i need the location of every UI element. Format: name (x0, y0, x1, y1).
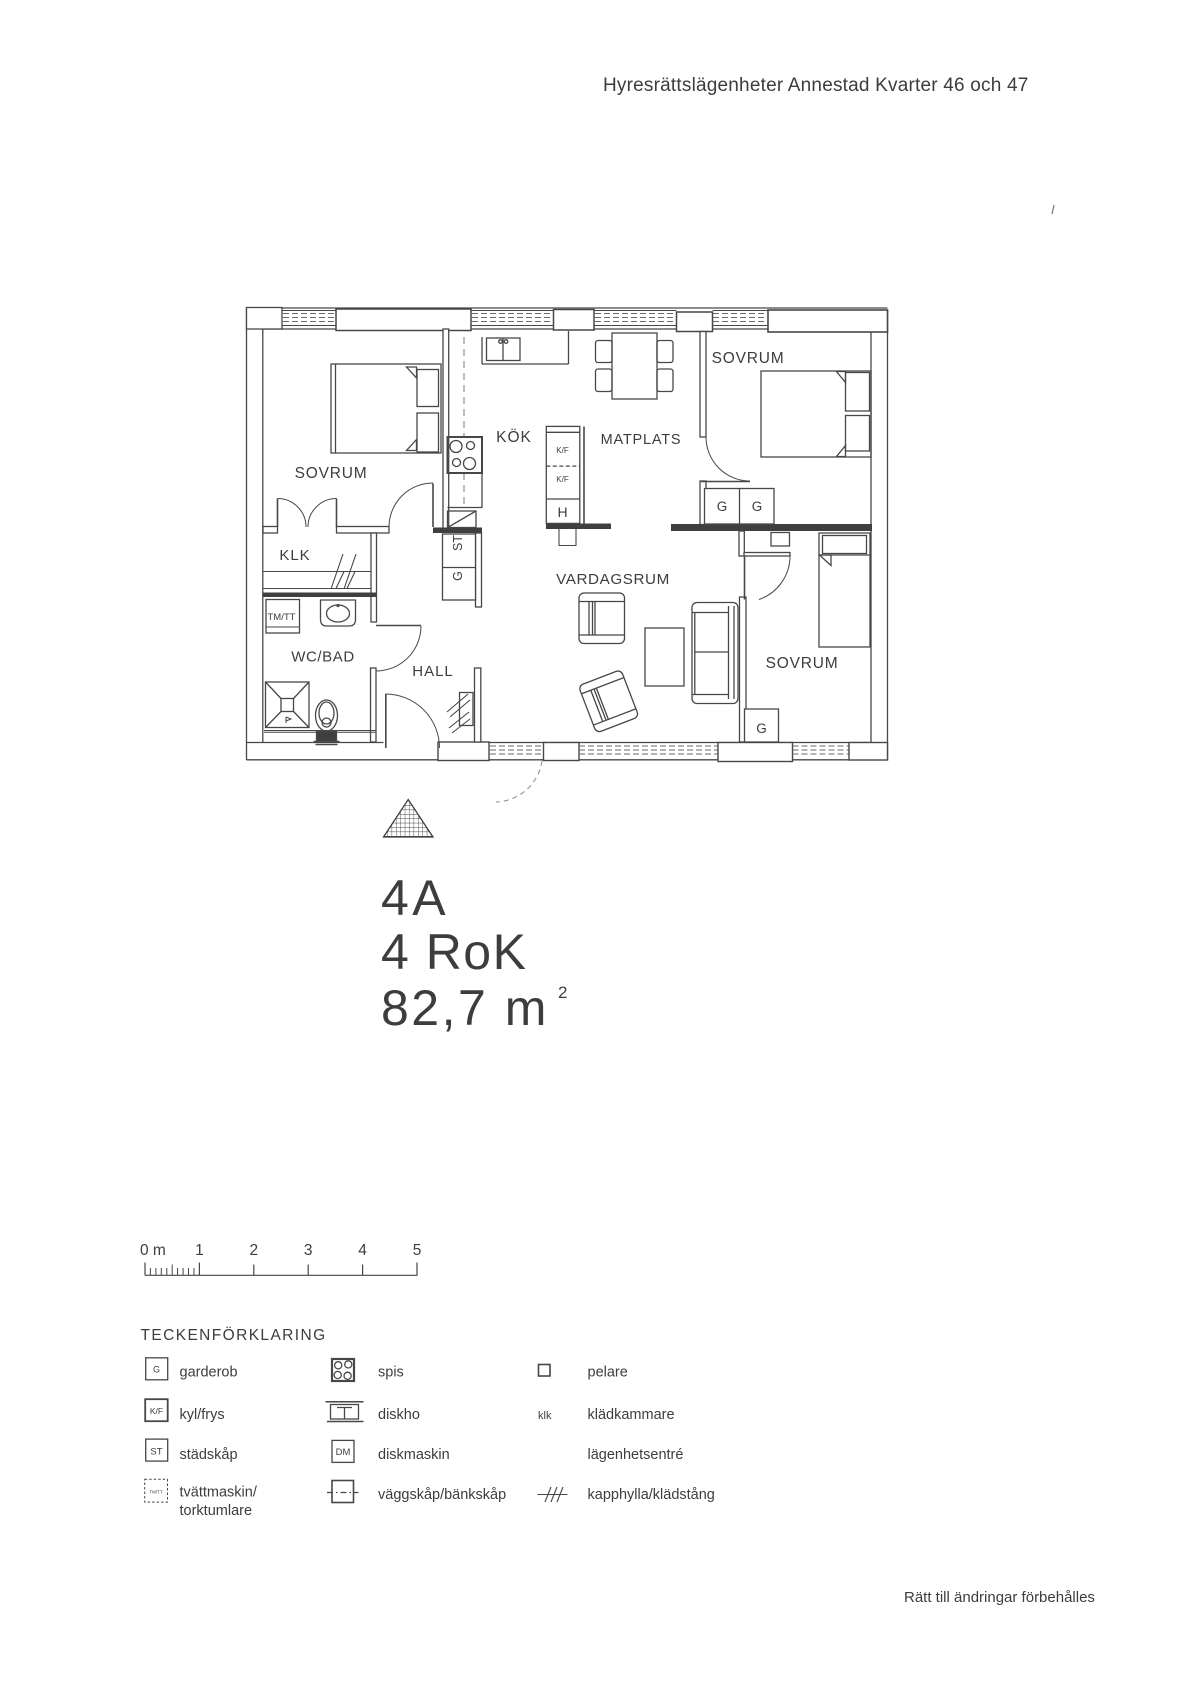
svg-text:KÖK: KÖK (496, 428, 532, 446)
svg-text:ST: ST (451, 535, 465, 551)
svg-text:4 RoK: 4 RoK (381, 924, 527, 980)
svg-text:diskmaskin: diskmaskin (378, 1447, 450, 1463)
svg-text:WC/BAD: WC/BAD (291, 649, 355, 666)
svg-text:H: H (557, 504, 567, 520)
svg-text:SOVRUM: SOVRUM (712, 350, 785, 367)
svg-text:garderob: garderob (180, 1365, 238, 1381)
svg-text:tvättmaskin/: tvättmaskin/ (180, 1485, 258, 1501)
svg-text:G: G (756, 721, 767, 736)
svg-text:klk: klk (538, 1410, 552, 1422)
svg-text:SOVRUM: SOVRUM (766, 655, 839, 672)
svg-text:SOVRUM: SOVRUM (295, 465, 368, 482)
svg-text:4A: 4A (381, 870, 449, 926)
svg-text:2: 2 (249, 1242, 258, 1259)
svg-text:pelare: pelare (588, 1365, 628, 1381)
svg-text:G: G (717, 499, 728, 514)
svg-text:0 m: 0 m (140, 1242, 166, 1259)
svg-text:DM: DM (336, 1447, 351, 1458)
svg-text:KLK: KLK (279, 547, 310, 564)
svg-text:lägenhetsentré: lägenhetsentré (588, 1447, 684, 1463)
svg-text:K/F: K/F (150, 1406, 163, 1416)
svg-text:kyl/frys: kyl/frys (180, 1407, 225, 1423)
svg-text:3: 3 (304, 1242, 313, 1259)
svg-text:G: G (451, 571, 465, 581)
svg-text:diskho: diskho (378, 1407, 420, 1423)
svg-text:82,7 m: 82,7 m (381, 980, 549, 1036)
svg-text:G: G (153, 1365, 160, 1375)
svg-text:5: 5 (413, 1242, 422, 1259)
svg-text:klädkammare: klädkammare (588, 1407, 675, 1423)
svg-text:TM/TT: TM/TT (268, 612, 296, 623)
svg-text:K/F: K/F (556, 446, 569, 455)
svg-text:ST: ST (150, 1447, 162, 1458)
svg-text:2: 2 (558, 983, 567, 1002)
svg-text:G: G (752, 499, 763, 514)
svg-text:TM/TT: TM/TT (149, 1490, 162, 1495)
svg-text:Hyresrättslägenheter Annestad: Hyresrättslägenheter Annestad Kvarter 46… (603, 75, 1029, 96)
svg-text:torktumlare: torktumlare (180, 1503, 253, 1519)
svg-text:spis: spis (378, 1365, 404, 1381)
svg-text:städskåp: städskåp (180, 1447, 238, 1463)
svg-text:väggskåp/bänkskåp: väggskåp/bänkskåp (378, 1487, 506, 1503)
svg-text:TECKENFÖRKLARING: TECKENFÖRKLARING (141, 1326, 327, 1344)
svg-text:4: 4 (358, 1242, 367, 1259)
svg-text:Rätt till ändringar förbehålle: Rätt till ändringar förbehålles (904, 1589, 1095, 1606)
svg-text:kapphylla/klädstång: kapphylla/klädstång (588, 1487, 715, 1503)
svg-text:MATPLATS: MATPLATS (601, 432, 682, 448)
svg-text:K/F: K/F (556, 475, 569, 484)
svg-text:HALL: HALL (412, 663, 454, 680)
svg-text:VARDAGSRUM: VARDAGSRUM (556, 571, 670, 588)
svg-text:1: 1 (195, 1242, 204, 1259)
